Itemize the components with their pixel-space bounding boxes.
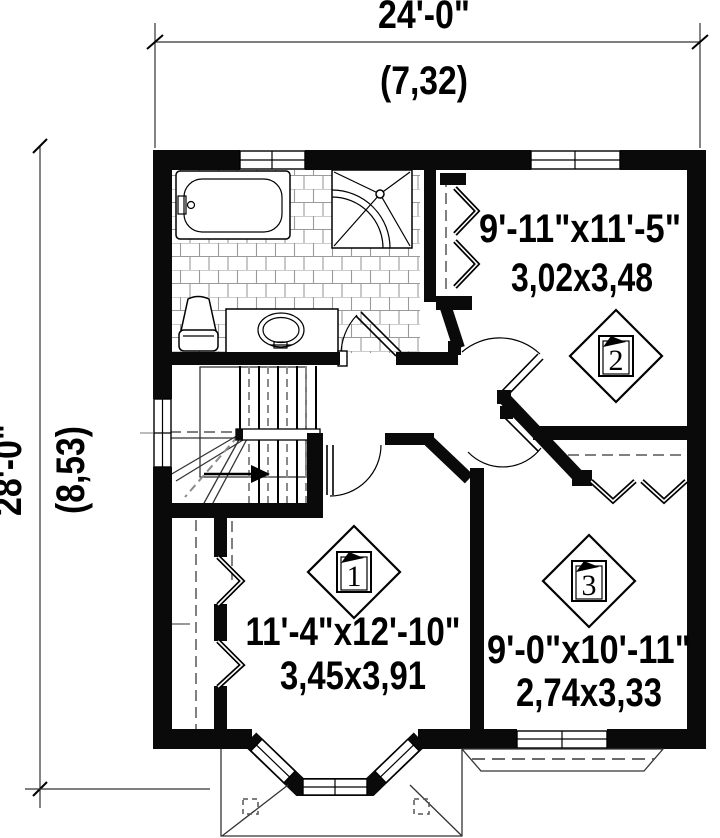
room2-window-icon: [531, 151, 620, 169]
stairwell-window-icon: [154, 399, 171, 467]
room1-door: [327, 445, 381, 496]
svg-text:3: 3: [582, 569, 597, 602]
room3-window-icon: [517, 731, 607, 748]
bathroom-window-icon: [240, 151, 305, 169]
bathtub-icon: [176, 171, 290, 239]
room2-door: [462, 338, 543, 398]
room-markers: 2 1 3: [308, 310, 662, 627]
bay-window-right-icon: [375, 739, 419, 782]
porch-roof-outline: [221, 749, 663, 836]
dimension-top: 24'-0" (7,32): [147, 0, 708, 148]
room3-metric-label: 2,74x3,33: [516, 671, 662, 715]
top-dimension-meters: (7,32): [380, 59, 468, 103]
left-dimension-meters: (8,53): [49, 426, 93, 514]
room2-metric-label: 3,02x3,48: [511, 256, 653, 300]
svg-text:2: 2: [609, 344, 624, 377]
room2-closet-bifold-icon: [455, 188, 477, 287]
svg-text:1: 1: [347, 560, 362, 593]
room3-imperial-label: 9'-0"x10'-11": [487, 628, 691, 672]
room1-metric-label: 3,45x3,91: [280, 654, 426, 698]
top-dimension-feet: 24'-0": [378, 0, 470, 37]
bay-window-left-icon: [251, 739, 295, 782]
floor-plan-svg: 24'-0" (7,32) 28'-0" (8,53): [0, 0, 720, 838]
porch-post-left-icon: [243, 799, 258, 814]
roof-below-right: [462, 749, 663, 771]
bathroom: [172, 170, 420, 353]
room2-imperial-label: 9'-11"x11'-5": [479, 207, 681, 251]
marker-3-icon: 3: [543, 535, 635, 627]
marker-2-icon: 2: [570, 310, 662, 402]
shower-icon: [332, 170, 412, 248]
left-dimension-feet: 28'-0": [0, 424, 30, 516]
bay-window-center-icon: [303, 779, 367, 795]
sink-vanity-icon: [226, 309, 338, 353]
stairs: [170, 366, 320, 516]
room3-closet-bifold-icon: [591, 481, 686, 501]
stair-direction-arrow-icon: [204, 465, 270, 483]
marker-1-icon: 1: [308, 526, 400, 618]
floor-plan-canvas: 24'-0" (7,32) 28'-0" (8,53): [0, 0, 720, 838]
